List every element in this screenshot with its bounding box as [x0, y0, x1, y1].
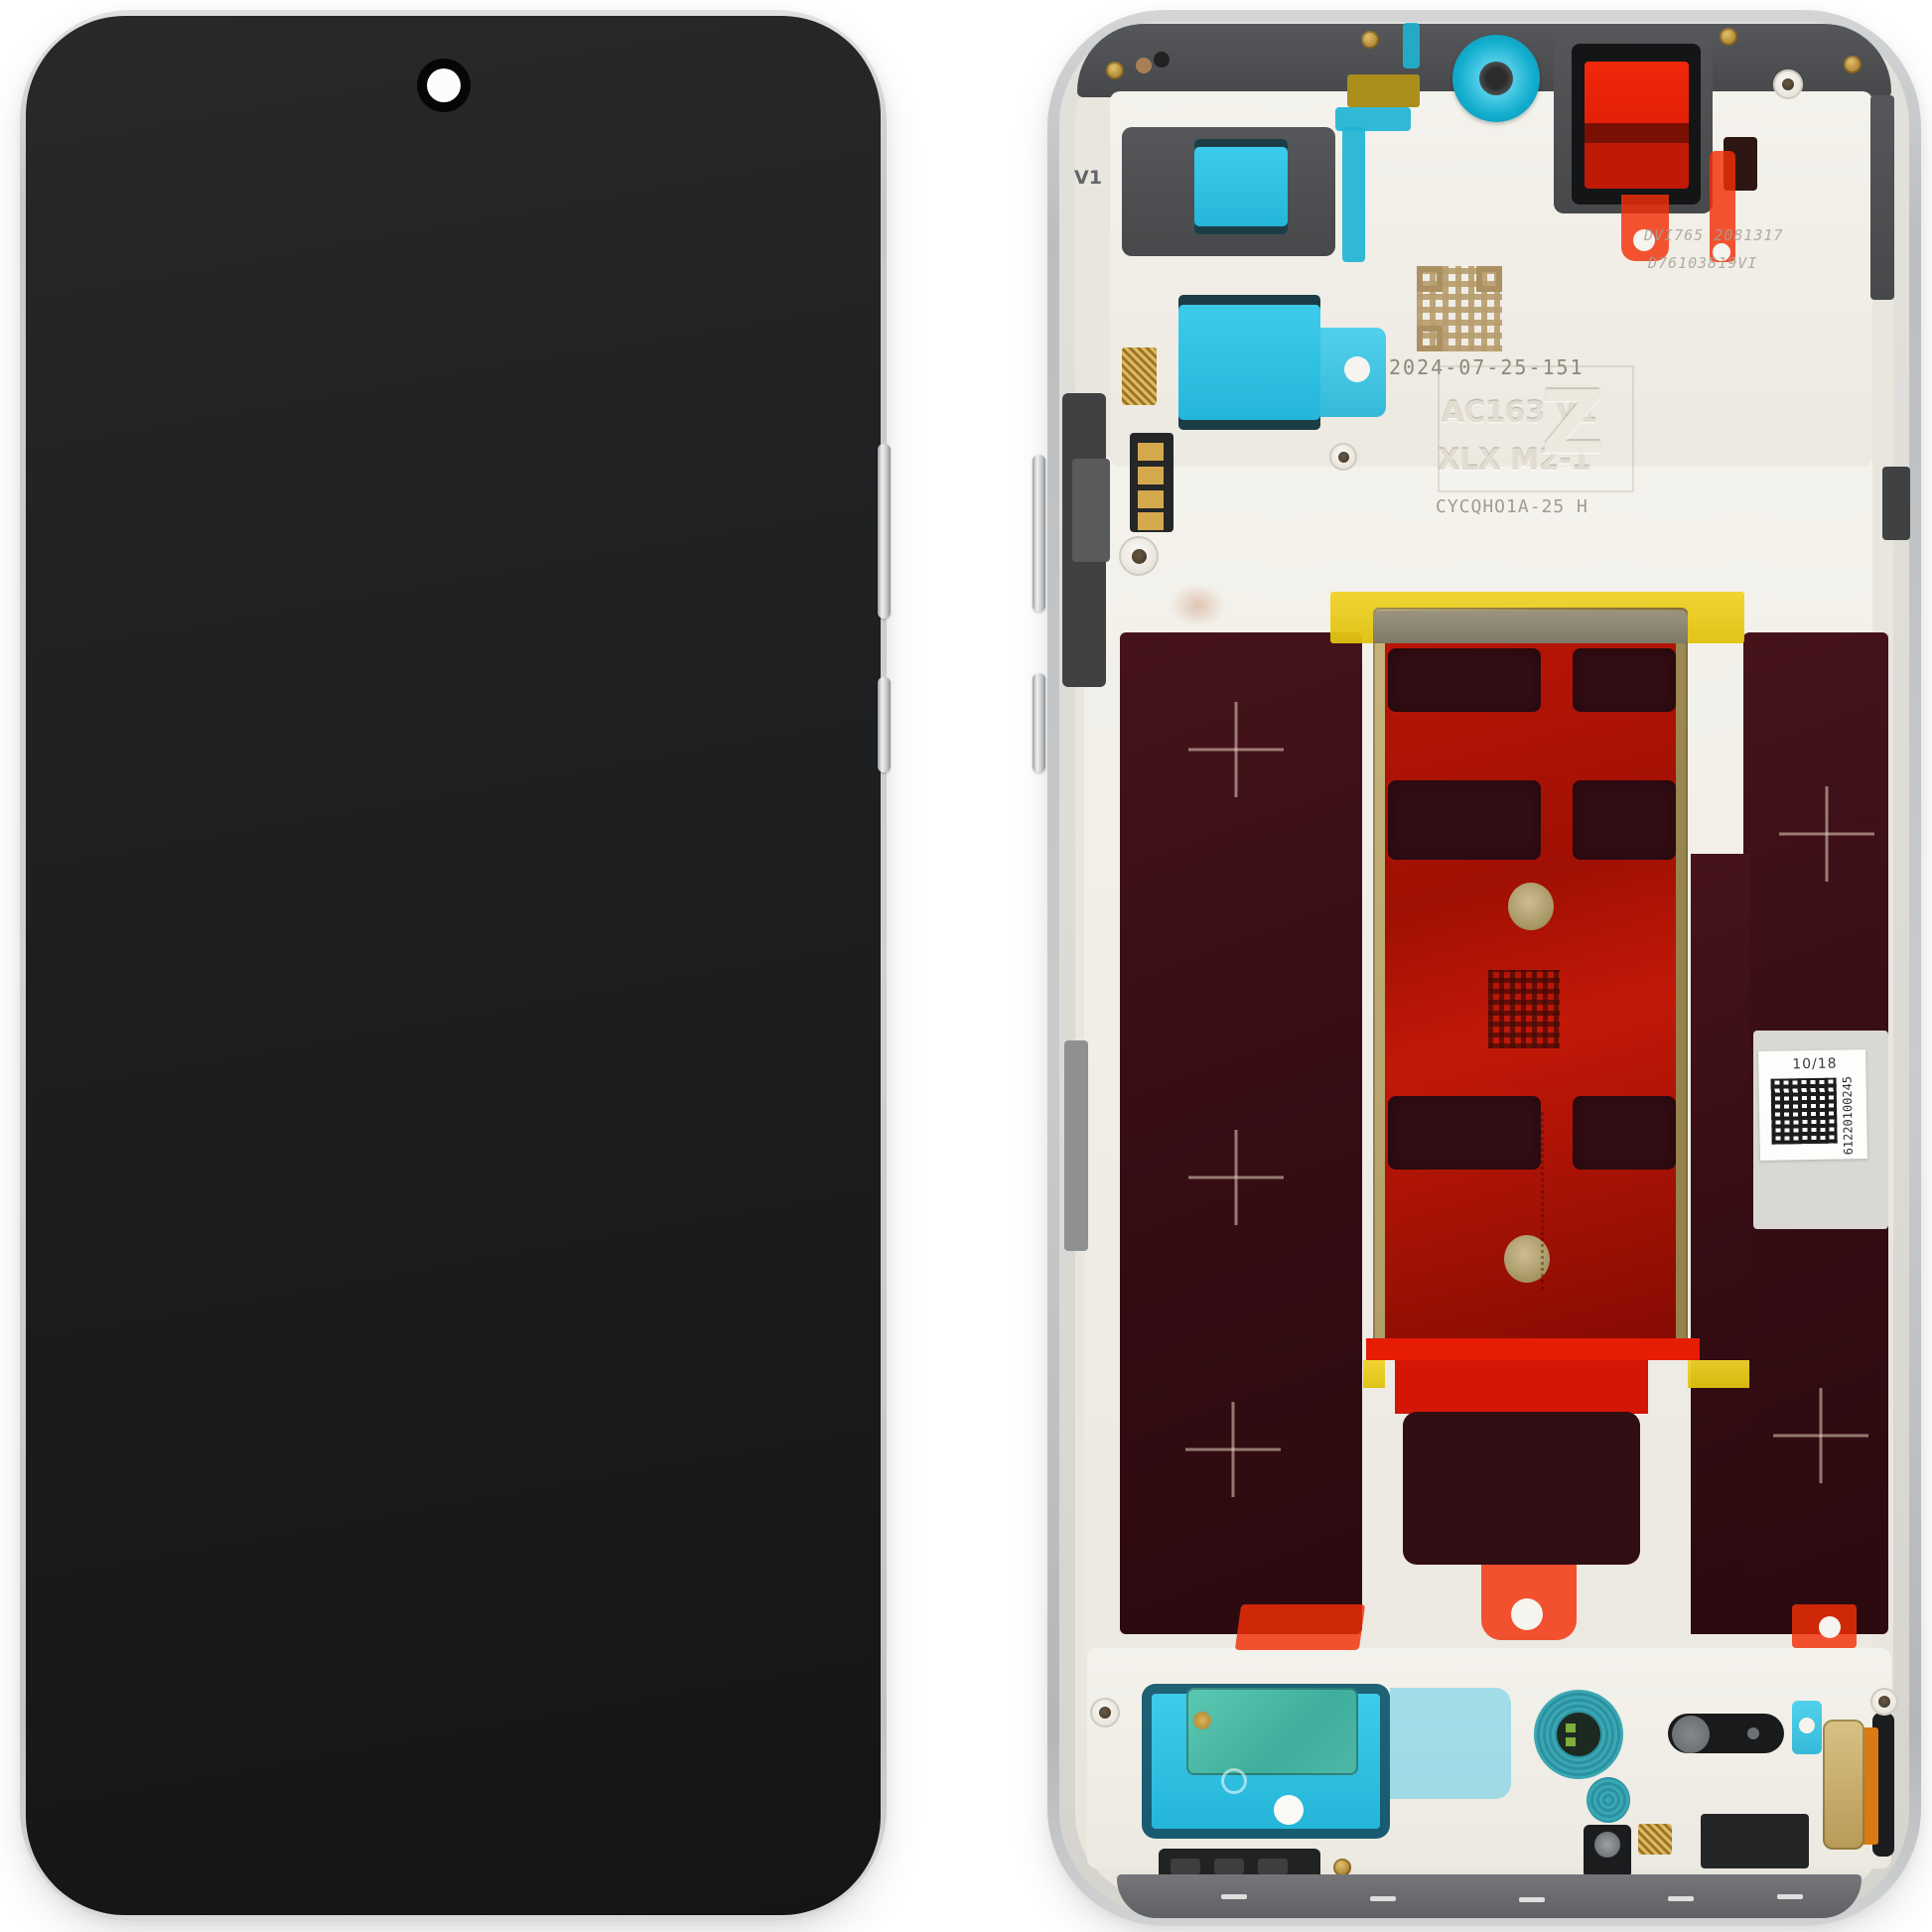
bottom-mesh-gold	[1638, 1824, 1672, 1855]
adhesive-tab-bottom-hole	[1799, 1718, 1815, 1733]
battery-block-r2-left	[1388, 780, 1541, 860]
flash-red-notch-band	[1585, 123, 1689, 143]
antenna-dash-4	[1668, 1896, 1694, 1901]
graphite-panel-right-extension	[1691, 854, 1750, 1634]
copper-contact-dot	[1136, 58, 1152, 73]
speaker-gold-pad	[1193, 1712, 1211, 1729]
antenna-dash-5	[1777, 1894, 1803, 1899]
qr-finder-tl	[1417, 266, 1443, 292]
battery-gold-dot-1	[1508, 883, 1554, 930]
embossed-outline-box	[1438, 365, 1634, 492]
code-line-label: CYCQHO1A-25 H	[1436, 496, 1588, 517]
screw-top-right	[1720, 28, 1737, 46]
back-volume-button	[1033, 455, 1045, 612]
battery-block-r1-right	[1573, 648, 1676, 712]
battery-dot-code	[1488, 970, 1560, 1048]
speaker-mesh-gold	[1122, 347, 1157, 405]
laser-etch-line2: D76103819VI	[1648, 254, 1757, 272]
sticker-ratio-label: 10/18	[1792, 1056, 1838, 1073]
alignment-cross-5	[1773, 1388, 1868, 1483]
screw-top-center	[1361, 31, 1379, 49]
alignment-cross-1	[1188, 702, 1284, 797]
sticker-datamatrix-code	[1771, 1078, 1838, 1145]
front-phone-screen	[26, 16, 881, 1915]
qr-code-etched	[1417, 266, 1502, 351]
qr-finder-bl	[1417, 326, 1443, 351]
kapton-tape-bottom-left	[1363, 1360, 1385, 1388]
bottom-antenna-band	[1117, 1874, 1862, 1918]
side-button-flex	[1072, 459, 1110, 562]
adhesive-film-tail	[1390, 1688, 1511, 1799]
antenna-dash-3	[1519, 1897, 1545, 1902]
punch-hole-camera-icon	[427, 69, 461, 102]
bracket-small-dot	[1747, 1727, 1759, 1739]
back-power-button	[1033, 673, 1045, 772]
right-edge-notch	[1882, 467, 1910, 540]
gold-kapton-patch	[1347, 74, 1420, 107]
screw-top-far-right	[1844, 56, 1862, 73]
screw-boss-hole-top-right	[1782, 78, 1794, 90]
adhesive-tab-hole	[1344, 356, 1370, 382]
gold-contact-4	[1138, 512, 1164, 530]
bottom-mic-hole	[1594, 1832, 1620, 1858]
plate-gray-strip	[1373, 611, 1688, 643]
flash-red-window-lower	[1585, 143, 1689, 189]
connector-gold-pad	[1823, 1720, 1864, 1850]
front-power-button	[878, 677, 891, 772]
screw-boss-hole-br1	[1878, 1696, 1890, 1708]
bracket-speckle-circle	[1672, 1716, 1710, 1753]
mic-pcb-pad-2	[1566, 1737, 1576, 1746]
alignment-cross-2	[1188, 1130, 1284, 1225]
speaker-white-dot	[1274, 1795, 1304, 1825]
battery-bright-red-band	[1366, 1338, 1700, 1360]
adhesive-patch-earpiece	[1194, 139, 1288, 234]
left-mid-rail	[1064, 1040, 1088, 1251]
antenna-dash-1	[1221, 1894, 1247, 1899]
screw-top-left	[1106, 62, 1124, 79]
teal-strip-vertical	[1342, 127, 1365, 262]
camera-lens-hole	[1479, 62, 1513, 95]
gold-contact-3	[1138, 490, 1164, 508]
slot-1	[1171, 1859, 1200, 1874]
rust-smudge	[1170, 584, 1226, 627]
kapton-tape-bottom-right	[1688, 1360, 1749, 1388]
frame-mark-label: V1	[1074, 167, 1102, 189]
mic-pcb-pad-1	[1566, 1724, 1576, 1732]
screw-boss-hole-center	[1338, 452, 1349, 463]
speaker-pcb-window	[1186, 1688, 1358, 1775]
serial-sticker: 10/18 61220100245	[1758, 1049, 1867, 1161]
screw-boss-hole-mid-left	[1132, 549, 1147, 564]
slot-3	[1258, 1859, 1288, 1874]
battery-block-r3-left	[1388, 1096, 1541, 1170]
screw-boss-hole-bl1	[1099, 1707, 1111, 1719]
teal-tab-top	[1403, 23, 1420, 69]
flash-red-window-upper	[1585, 62, 1689, 127]
antenna-dash-2	[1370, 1896, 1396, 1901]
red-adhesive-hole	[1819, 1616, 1841, 1638]
gold-contact-1	[1138, 443, 1164, 461]
laser-etch-line1: DVI765 2081317	[1644, 226, 1783, 244]
front-volume-button	[878, 444, 891, 619]
black-screw-hole	[1154, 52, 1170, 68]
mic-grommet-hole	[1557, 1713, 1600, 1756]
adhesive-patch-speaker-top	[1178, 295, 1320, 430]
battery-block-r3-right	[1573, 1096, 1676, 1170]
speaker-ring-mark	[1221, 1768, 1247, 1794]
battery-block-bottom	[1403, 1412, 1640, 1565]
red-adhesive-bottom-left	[1235, 1604, 1365, 1650]
mic-grommet-tail	[1587, 1777, 1630, 1823]
slot-2	[1214, 1859, 1244, 1874]
qr-finder-tr	[1476, 266, 1502, 292]
gold-contact-2	[1138, 467, 1164, 484]
product-photo: V1 DVI765 2081317 D76103819VI 2024-07-25…	[0, 0, 1932, 1932]
black-foam-patch	[1701, 1814, 1809, 1868]
pull-tab-hole-battery	[1511, 1598, 1543, 1630]
battery-block-r1-left	[1388, 648, 1541, 712]
logo-letter: Z	[1541, 371, 1604, 474]
sticker-serial-vertical: 61220100245	[1840, 1057, 1856, 1155]
alignment-cross-4	[1779, 786, 1874, 882]
battery-faint-vertical-marks	[1541, 1112, 1544, 1291]
battery-red-lower	[1395, 1360, 1648, 1414]
battery-block-r2-right	[1573, 780, 1676, 860]
alignment-cross-3	[1185, 1402, 1281, 1497]
front-phone-frame	[20, 10, 887, 1921]
right-edge-rail-top	[1870, 95, 1894, 300]
